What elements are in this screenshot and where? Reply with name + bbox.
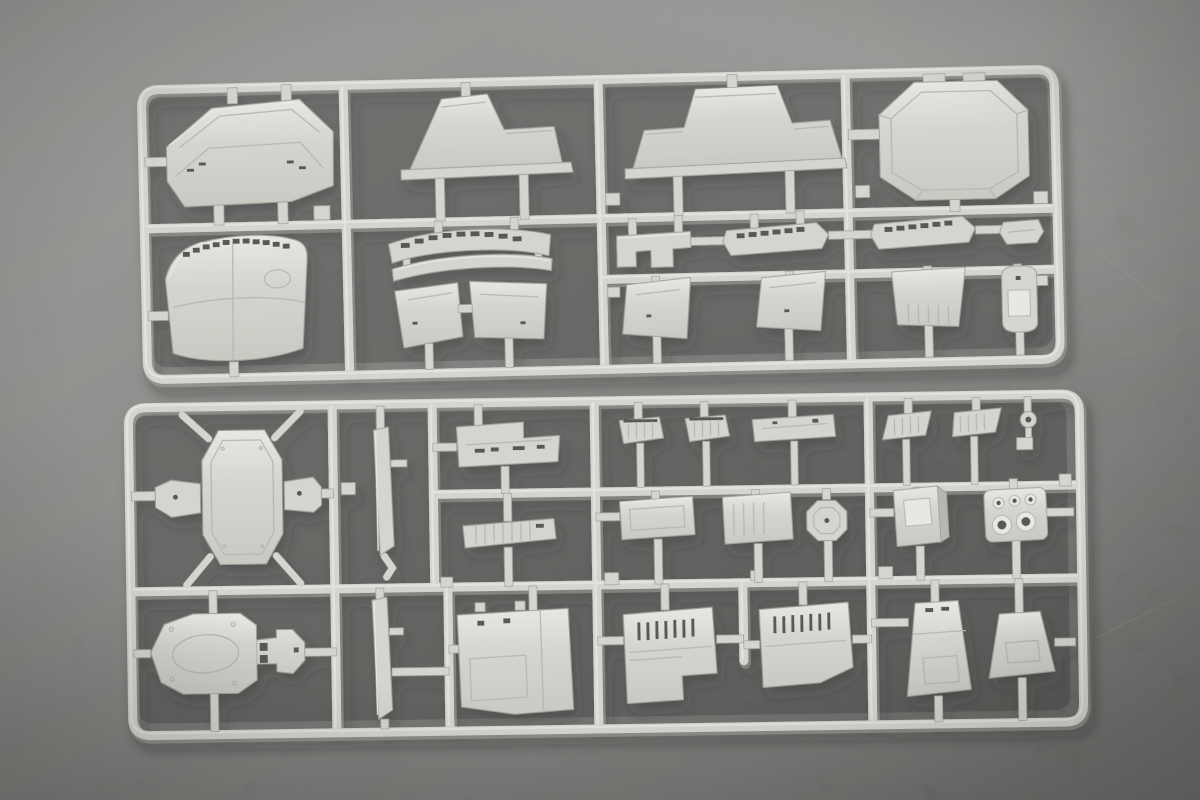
sprue-photo-svg [0,0,1200,800]
photo-vignette [0,0,1200,800]
product-photo [0,0,1200,800]
